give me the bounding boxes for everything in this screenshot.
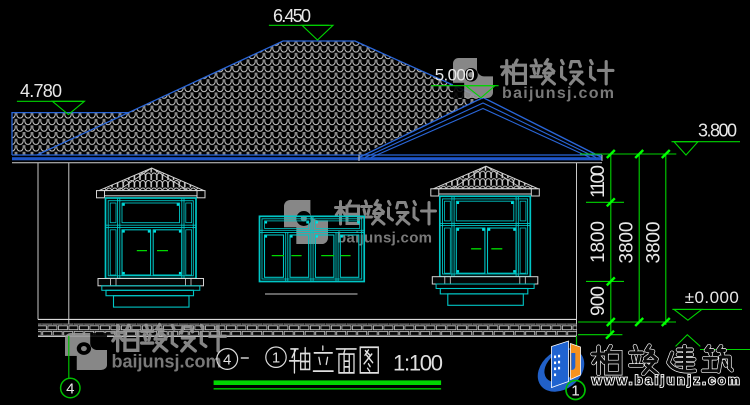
svg-text:5.000: 5.000: [435, 66, 475, 85]
svg-text:3800: 3800: [617, 222, 638, 264]
svg-text:900: 900: [588, 286, 609, 316]
svg-text:6.450: 6.450: [273, 6, 311, 26]
svg-text:4.780: 4.780: [20, 81, 62, 101]
svg-text:3800: 3800: [644, 222, 665, 264]
svg-text:1800: 1800: [588, 221, 609, 263]
svg-text:1: 1: [571, 383, 579, 400]
svg-text:±0.000: ±0.000: [685, 288, 739, 307]
svg-text:4: 4: [223, 352, 231, 369]
svg-text:baijunsj.com: baijunsj.com: [112, 352, 222, 372]
svg-text:3.800: 3.800: [698, 121, 737, 141]
svg-text:1100: 1100: [588, 165, 609, 198]
svg-text:1:100: 1:100: [393, 351, 443, 376]
svg-text:4: 4: [66, 381, 74, 398]
svg-text:baijunsj.com: baijunsj.com: [502, 85, 614, 102]
svg-text:1: 1: [272, 350, 280, 367]
